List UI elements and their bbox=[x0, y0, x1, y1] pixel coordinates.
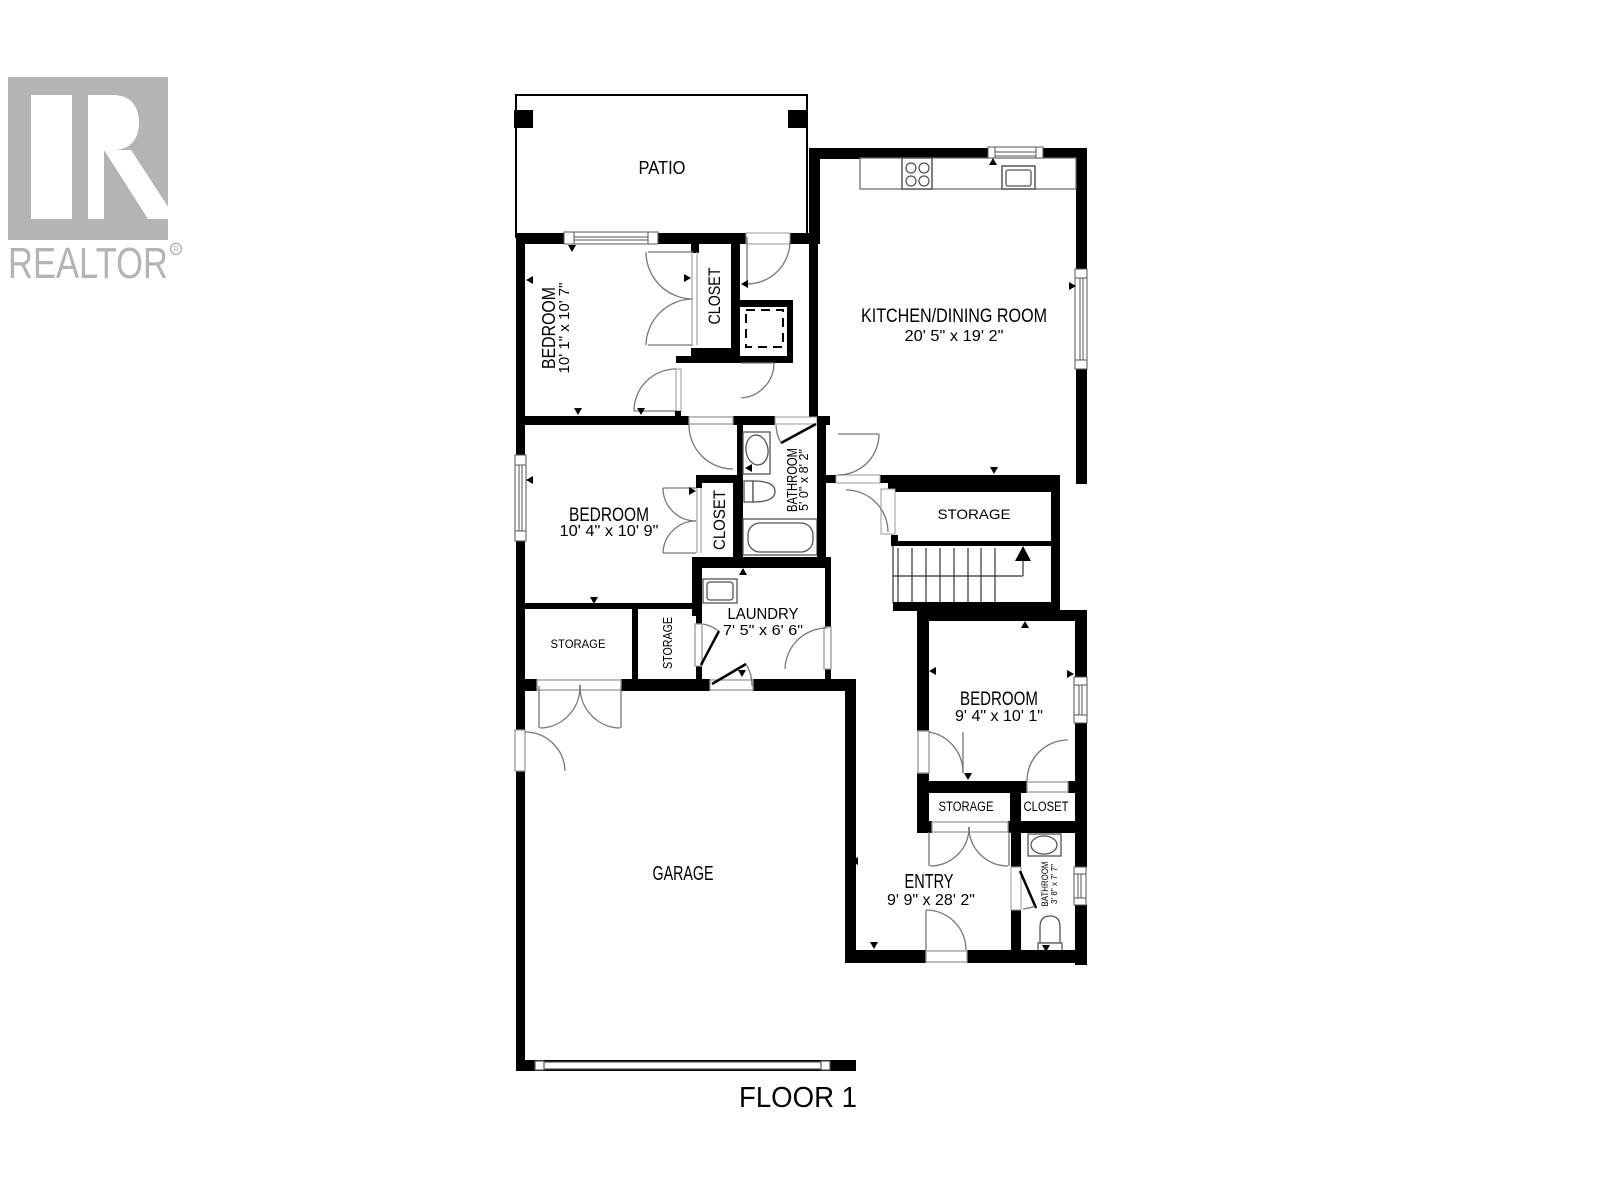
svg-text:5' 0" x 8' 2": 5' 0" x 8' 2" bbox=[797, 449, 811, 511]
svg-text:LAUNDRY: LAUNDRY bbox=[728, 606, 799, 623]
svg-text:CLOSET: CLOSET bbox=[711, 490, 729, 550]
svg-text:10' 1" x 10' 7": 10' 1" x 10' 7" bbox=[556, 283, 573, 374]
svg-text:9' 9" x 28' 2": 9' 9" x 28' 2" bbox=[887, 892, 975, 909]
svg-text:R: R bbox=[173, 245, 179, 254]
svg-text:7' 5" x 6' 6": 7' 5" x 6' 6" bbox=[723, 623, 803, 639]
svg-text:BEDROOM: BEDROOM bbox=[960, 689, 1038, 710]
svg-text:9' 4" x 10' 1": 9' 4" x 10' 1" bbox=[955, 708, 1043, 725]
svg-text:REALTOR: REALTOR bbox=[8, 239, 168, 288]
svg-text:3' 8" x 7' 7": 3' 8" x 7' 7" bbox=[1049, 864, 1059, 904]
svg-text:KITCHEN/DINING ROOM: KITCHEN/DINING ROOM bbox=[861, 305, 1047, 327]
svg-text:GARAGE: GARAGE bbox=[653, 862, 714, 885]
svg-text:CLOSET: CLOSET bbox=[1024, 799, 1069, 814]
svg-text:STORAGE: STORAGE bbox=[551, 639, 606, 651]
svg-text:PATIO: PATIO bbox=[639, 158, 686, 178]
svg-text:FLOOR 1: FLOOR 1 bbox=[739, 1082, 857, 1114]
svg-text:20' 5" x 19' 2": 20' 5" x 19' 2" bbox=[905, 328, 1004, 345]
svg-text:STORAGE: STORAGE bbox=[938, 506, 1011, 522]
svg-text:10' 4" x 10' 9": 10' 4" x 10' 9" bbox=[560, 523, 659, 540]
svg-text:CLOSET: CLOSET bbox=[706, 268, 724, 325]
svg-text:ENTRY: ENTRY bbox=[905, 871, 954, 893]
svg-text:STORAGE: STORAGE bbox=[939, 799, 994, 814]
svg-text:STORAGE: STORAGE bbox=[660, 617, 675, 669]
